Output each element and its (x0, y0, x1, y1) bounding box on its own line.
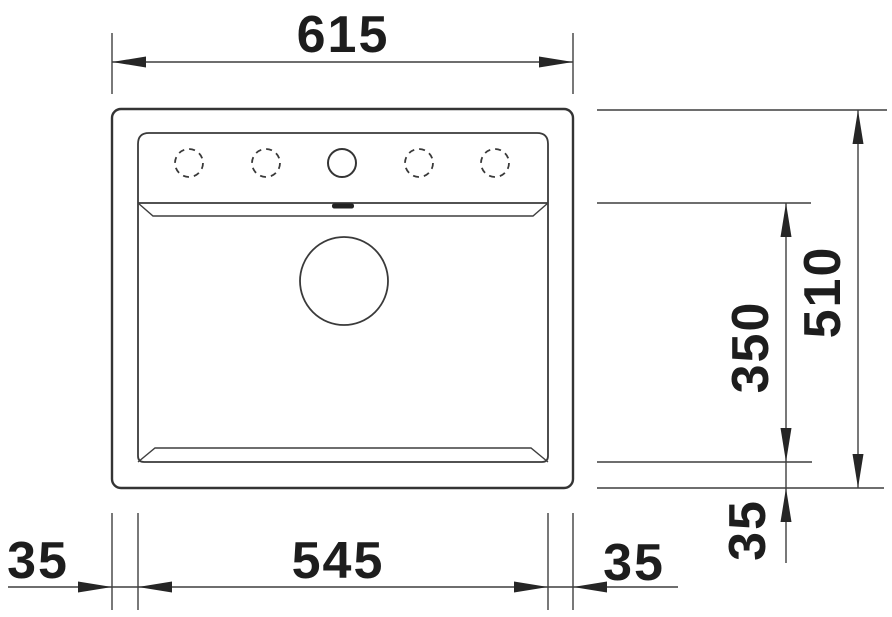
sink-bowl-edge (138, 133, 548, 462)
arrowhead-right (514, 582, 548, 593)
arrowhead-up (781, 203, 792, 237)
dimension-overall-depth: 510 (597, 110, 887, 488)
sink-technical-drawing: 615 510 350 35 (0, 0, 892, 617)
dim-label-overall-depth: 510 (794, 246, 852, 339)
dim-label-rim-right: 35 (603, 534, 665, 592)
tap-hole-optional-2 (252, 149, 280, 177)
arrowhead-left (573, 582, 607, 593)
dimension-rim-front: 35 (719, 462, 792, 563)
tap-hole-optional-4 (481, 149, 509, 177)
bowl-bottom-bevel-line (138, 448, 548, 462)
dim-label-rim-left: 35 (7, 532, 69, 590)
arrowhead-down (853, 454, 864, 488)
dimension-bottom-row: 35 545 35 (7, 513, 678, 610)
tap-hole-optional-1 (175, 149, 203, 177)
sink-body (112, 109, 573, 488)
arrowhead-right (539, 57, 573, 68)
arrowhead-up (781, 488, 792, 522)
arrowhead-left (112, 57, 146, 68)
dimension-overall-width: 615 (112, 6, 573, 94)
dim-label-bowl-depth: 350 (722, 301, 780, 394)
dim-label-overall-width: 615 (297, 6, 390, 64)
tap-holes (175, 149, 509, 177)
overflow-slot (332, 204, 354, 209)
dimension-bowl-depth: 350 (597, 203, 812, 462)
arrowhead-right (78, 582, 112, 593)
arrowhead-down (781, 428, 792, 462)
technical-drawing-page: 615 510 350 35 (0, 0, 892, 617)
dim-label-rim-front: 35 (719, 499, 777, 561)
dim-label-bowl-width: 545 (292, 532, 385, 590)
sink-outer-edge (112, 109, 573, 488)
arrowhead-up (853, 110, 864, 144)
arrowhead-left (138, 582, 172, 593)
drain-hole (300, 237, 388, 325)
tap-hole-main (328, 149, 356, 177)
tap-hole-optional-3 (405, 149, 433, 177)
